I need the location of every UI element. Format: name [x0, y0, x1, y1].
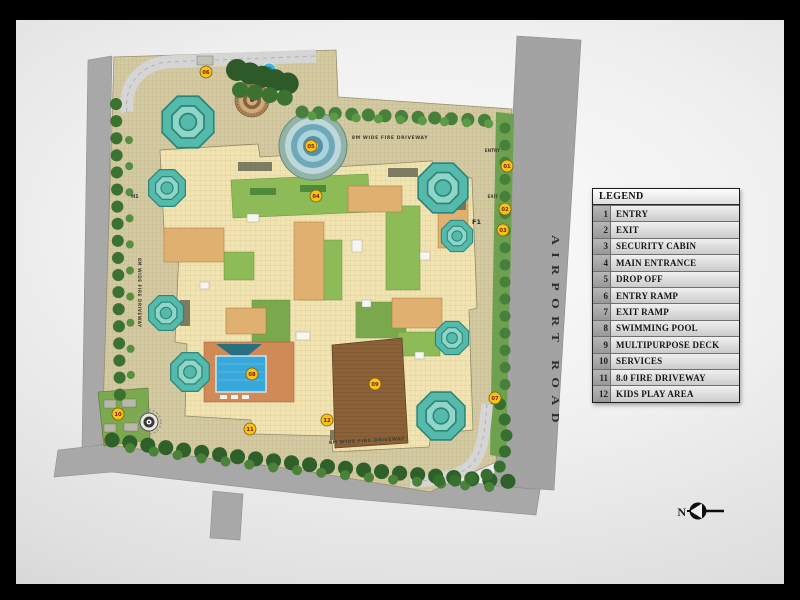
- ramp-hut: [197, 56, 213, 65]
- svg-text:02: 02: [501, 207, 509, 213]
- framed-site-plan-screenshot: { "window": { "frame_color": "#000000", …: [0, 0, 800, 600]
- svg-text:11: 11: [246, 427, 254, 433]
- marker-kids-play-area: 12: [321, 414, 333, 426]
- legend-row: 7EXIT RAMP: [593, 304, 739, 319]
- legend-row: 4MAIN ENTRANCE: [593, 255, 739, 270]
- svg-text:06: 06: [202, 70, 210, 76]
- fire-driveway-label-top: 8M WIDE FIRE DRIVEWAY: [352, 135, 428, 141]
- svg-text:03: 03: [499, 228, 507, 234]
- legend-row: 5DROP OFF: [593, 272, 739, 287]
- legend-row: 12KIDS PLAY AREA: [593, 386, 739, 401]
- fire-driveway-label-left: 8M WIDE FIRE DRIVEWAY: [137, 258, 142, 328]
- svg-text:08: 08: [248, 372, 256, 378]
- legend-item-label: SERVICES: [611, 354, 739, 369]
- marker-multipurpose-deck: 09: [369, 378, 381, 390]
- marker-exit-ramp: 07: [489, 392, 501, 404]
- legend-item-label: EXIT RAMP: [611, 304, 739, 319]
- legend-item-label: SWIMMING POOL: [611, 321, 739, 336]
- svg-text:01: 01: [503, 164, 511, 170]
- legend-item-label: MULTIPURPOSE DECK: [611, 337, 739, 352]
- legend-title: LEGEND: [593, 189, 739, 205]
- exit-label: EXIT: [487, 194, 498, 199]
- legend-item-number: 10: [593, 354, 610, 369]
- svg-text:04: 04: [312, 194, 320, 200]
- legend-item-label: SECURITY CABIN: [611, 239, 739, 254]
- airport-road-label: AIRPORT ROAD: [549, 235, 561, 430]
- svg-text:12: 12: [323, 418, 331, 424]
- legend-row: 8SWIMMING POOL: [593, 321, 739, 336]
- marker-entry: 01: [501, 160, 513, 172]
- legend-item-number: 1: [593, 206, 610, 221]
- marker-swimming-pool: 08: [246, 368, 258, 380]
- legend-item-number: 6: [593, 288, 610, 303]
- entry-label: ENTRY: [485, 148, 501, 153]
- bottom-stub-road: [210, 491, 243, 540]
- svg-text:10: 10: [114, 412, 122, 418]
- legend-row: 118.0 FIRE DRIVEWAY: [593, 370, 739, 385]
- legend-row: 3SECURITY CABIN: [593, 239, 739, 254]
- legend-item-number: 12: [593, 386, 610, 401]
- legend-item-label: ENTRY RAMP: [611, 288, 739, 303]
- legend-item-number: 3: [593, 239, 610, 254]
- legend: LEGEND 1ENTRY 2EXIT 3SECURITY CABIN 4MAI…: [592, 188, 740, 403]
- svg-text:05: 05: [307, 144, 315, 150]
- legend-item-number: 11: [593, 370, 610, 385]
- legend-item-number: 5: [593, 272, 610, 287]
- legend-item-label: DROP OFF: [611, 272, 739, 287]
- multipurpose-deck: [332, 338, 408, 448]
- block-f1-label: F1: [472, 218, 481, 226]
- legend-row: 2EXIT: [593, 222, 739, 237]
- legend-item-label: MAIN ENTRANCE: [611, 255, 739, 270]
- marker-entry-ramp: 06: [200, 66, 212, 78]
- legend-row: 1ENTRY: [593, 206, 739, 221]
- marker-security-cabin: 03: [497, 224, 509, 236]
- legend-item-label: ENTRY: [611, 206, 739, 221]
- marker-main-entrance: 04: [310, 190, 322, 202]
- marker-exit: 02: [499, 203, 511, 215]
- north-label: N: [677, 505, 686, 519]
- swimming-pool: [216, 356, 266, 392]
- block-h1-label: H1: [131, 194, 139, 200]
- north-compass: N: [677, 503, 724, 520]
- legend-row: 10SERVICES: [593, 354, 739, 369]
- legend-row: 9MULTIPURPOSE DECK: [593, 337, 739, 352]
- legend-item-label: EXIT: [611, 222, 739, 237]
- legend-item-number: 9: [593, 337, 610, 352]
- legend-item-number: 2: [593, 222, 610, 237]
- marker-drop-off: 05: [305, 140, 317, 152]
- legend-item-number: 8: [593, 321, 610, 336]
- svg-text:09: 09: [371, 382, 379, 388]
- legend-item-number: 4: [593, 255, 610, 270]
- slide-background: 8M WIDE FIRE DRIVEWAY 8M WIDE FIRE DRIVE…: [16, 20, 784, 584]
- legend-row: 6ENTRY RAMP: [593, 288, 739, 303]
- svg-text:07: 07: [491, 396, 499, 402]
- legend-item-label: KIDS PLAY AREA: [611, 386, 739, 401]
- marker-fire-driveway: 11: [244, 423, 256, 435]
- legend-item-number: 7: [593, 304, 610, 319]
- legend-item-label: 8.0 FIRE DRIVEWAY: [611, 370, 739, 385]
- marker-services: 10: [112, 408, 124, 420]
